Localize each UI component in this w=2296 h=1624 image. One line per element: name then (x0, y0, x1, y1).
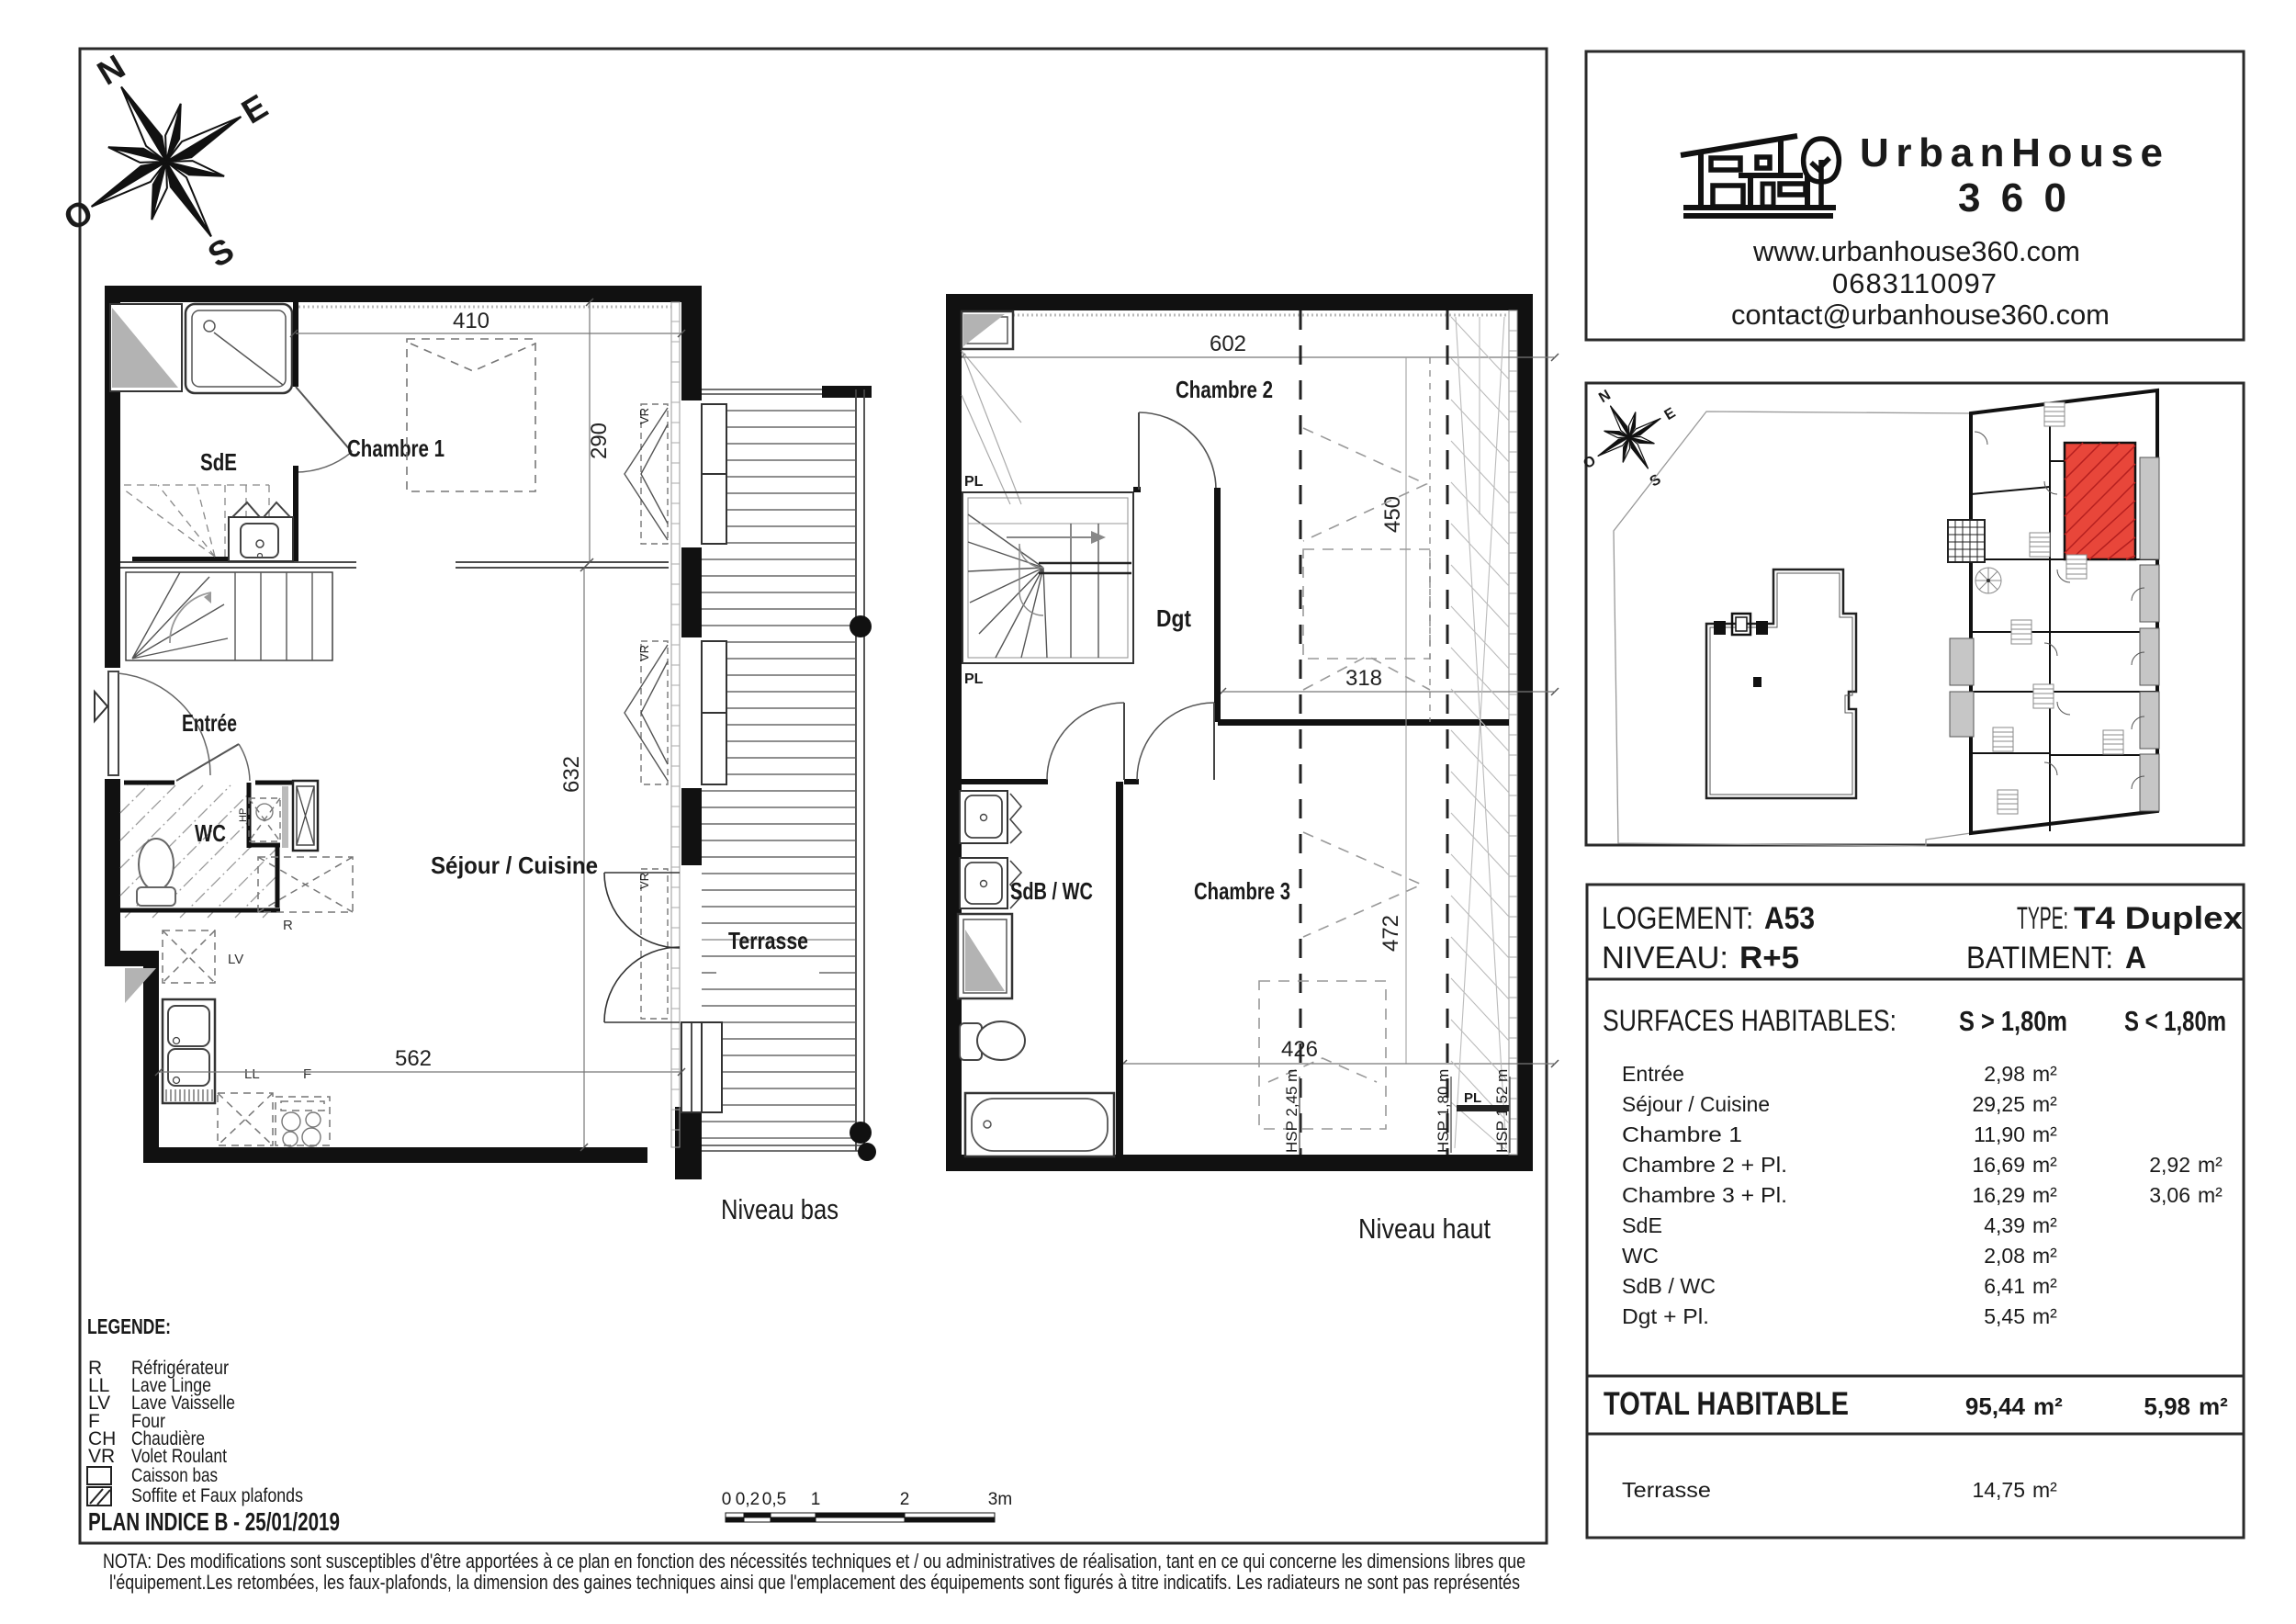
svg-text:m²: m² (2032, 1092, 2057, 1116)
svg-text:S < 1,80m: S < 1,80m (2124, 1005, 2226, 1037)
svg-text:2: 2 (900, 1490, 910, 1509)
svg-text:m²: m² (2032, 1244, 2057, 1268)
svg-text:HSP 1,80 m: HSP 1,80 m (1435, 1069, 1452, 1153)
svg-text:4,39: 4,39 (1984, 1213, 2025, 1237)
svg-text:PL: PL (1464, 1090, 1481, 1106)
svg-text:95,44: 95,44 (1965, 1393, 2026, 1420)
svg-text:m²: m² (2199, 1393, 2228, 1420)
svg-text:0,2: 0,2 (736, 1490, 760, 1509)
svg-text:602: 602 (1210, 332, 1246, 356)
svg-text:Séjour / Cuisine: Séjour / Cuisine (431, 851, 598, 879)
svg-text:TOTAL HABITABLE: TOTAL HABITABLE (1604, 1386, 1849, 1422)
svg-text:NOTA: Des modifications sont: NOTA: Des modifications sont susceptible… (103, 1550, 1525, 1573)
svg-text:T4 Duplex: T4 Duplex (2074, 901, 2243, 936)
svg-text:Terrasse: Terrasse (1622, 1478, 1711, 1502)
svg-text:VR: VR (637, 873, 651, 889)
svg-text:562: 562 (395, 1046, 432, 1071)
svg-text:410: 410 (453, 309, 490, 333)
svg-text:0683110097: 0683110097 (1832, 267, 1997, 299)
svg-text:m²: m² (2032, 1274, 2057, 1298)
svg-text:www.urbanhouse360.com: www.urbanhouse360.com (1752, 235, 2080, 267)
svg-text:m²: m² (2033, 1393, 2063, 1420)
svg-text:Chambre 3: Chambre 3 (1194, 877, 1290, 905)
svg-text:472: 472 (1379, 915, 1403, 952)
svg-text:3,06: 3,06 (2149, 1183, 2190, 1207)
svg-text:0: 0 (722, 1490, 732, 1509)
svg-text:Niveau haut: Niveau haut (1358, 1212, 1491, 1245)
svg-text:PL: PL (964, 474, 984, 490)
svg-text:A53: A53 (1764, 901, 1815, 936)
svg-text:HP: HP (238, 808, 249, 822)
svg-text:450: 450 (1380, 496, 1405, 533)
svg-text:Chambre 2: Chambre 2 (1176, 376, 1273, 403)
svg-text:PL: PL (964, 671, 984, 687)
svg-text:m²: m² (2032, 1213, 2057, 1237)
svg-text:360: 360 (1958, 175, 2066, 220)
svg-text:Terrasse: Terrasse (728, 927, 808, 954)
svg-text:WC: WC (1622, 1244, 1659, 1268)
svg-text:LL: LL (244, 1066, 260, 1082)
svg-text:TYPE:: TYPE: (2017, 901, 2068, 936)
svg-text:contact@urbanhouse360.com: contact@urbanhouse360.com (1731, 299, 2110, 331)
svg-text:Dgt + Pl.: Dgt + Pl. (1622, 1304, 1709, 1328)
svg-text:0,5: 0,5 (762, 1490, 786, 1509)
svg-text:m²: m² (2032, 1478, 2057, 1502)
svg-text:m²: m² (2198, 1183, 2223, 1207)
svg-text:290: 290 (587, 423, 612, 459)
svg-text:1: 1 (811, 1490, 821, 1509)
svg-text:R: R (283, 918, 293, 933)
svg-text:m²: m² (2032, 1122, 2057, 1146)
svg-text:5,98: 5,98 (2144, 1393, 2190, 1420)
svg-text:632: 632 (559, 756, 584, 793)
svg-text:Niveau bas: Niveau bas (721, 1193, 838, 1225)
svg-text:6,41: 6,41 (1984, 1274, 2025, 1298)
svg-text:m²: m² (2032, 1062, 2057, 1086)
svg-text:Dgt: Dgt (1156, 604, 1191, 632)
svg-text:S > 1,80m: S > 1,80m (1959, 1005, 2067, 1037)
svg-text:SURFACES HABITABLES:: SURFACES HABITABLES: (1603, 1004, 1896, 1037)
svg-text:UrbanHouse: UrbanHouse (1860, 130, 2163, 175)
svg-text:m²: m² (2032, 1183, 2057, 1207)
svg-text:Séjour / Cuisine: Séjour / Cuisine (1622, 1092, 1770, 1116)
svg-text:Entrée: Entrée (182, 709, 237, 737)
svg-text:SdE: SdE (1622, 1213, 1662, 1237)
svg-text:SdB / WC: SdB / WC (1622, 1274, 1716, 1298)
svg-text:VR: VR (88, 1446, 115, 1467)
svg-text:2,92: 2,92 (2149, 1153, 2190, 1177)
svg-text:LOGEMENT:: LOGEMENT: (1602, 901, 1753, 936)
svg-text:5,45: 5,45 (1984, 1304, 2025, 1328)
svg-text:l'équipement.Les retombées, l: l'équipement.Les retombées, les faux-pla… (109, 1571, 1520, 1594)
svg-text:Volet Roulant: Volet Roulant (131, 1446, 227, 1467)
svg-text:318: 318 (1345, 666, 1382, 691)
svg-text:Chambre 1: Chambre 1 (1622, 1122, 1742, 1146)
svg-text:16,69: 16,69 (1972, 1153, 2025, 1177)
svg-text:LV: LV (228, 952, 243, 967)
svg-text:Chambre 1: Chambre 1 (347, 434, 445, 462)
svg-text:Caisson bas: Caisson bas (131, 1465, 218, 1486)
svg-text:VR: VR (637, 645, 651, 661)
svg-text:16,29: 16,29 (1972, 1183, 2025, 1207)
svg-text:Chambre 2 + Pl.: Chambre 2 + Pl. (1622, 1153, 1787, 1177)
svg-text:Chambre 3 + Pl.: Chambre 3 + Pl. (1622, 1183, 1787, 1207)
svg-text:m²: m² (2032, 1153, 2057, 1177)
svg-text:m²: m² (2198, 1153, 2223, 1177)
svg-text:VR: VR (637, 408, 651, 424)
svg-text:WC: WC (195, 819, 226, 847)
svg-text:3m: 3m (988, 1490, 1012, 1509)
svg-text:R+5: R+5 (1739, 941, 1799, 976)
svg-text:14,75: 14,75 (1972, 1478, 2025, 1502)
svg-text:BATIMENT:: BATIMENT: (1966, 941, 2113, 976)
svg-text:29,25: 29,25 (1972, 1092, 2025, 1116)
svg-text:SdB / WC: SdB / WC (1010, 877, 1093, 905)
svg-text:HSP 2,45 m: HSP 2,45 m (1283, 1069, 1300, 1153)
svg-text:SdE: SdE (200, 448, 237, 476)
svg-text:11,90: 11,90 (1974, 1122, 2025, 1146)
svg-text:Entrée: Entrée (1622, 1062, 1684, 1086)
svg-text:Soffite et Faux plafonds: Soffite et Faux plafonds (131, 1485, 303, 1506)
svg-text:m²: m² (2032, 1304, 2057, 1328)
svg-text:2,98: 2,98 (1984, 1062, 2025, 1086)
svg-text:NIVEAU:: NIVEAU: (1602, 941, 1728, 976)
svg-text:F: F (303, 1066, 311, 1082)
svg-text:PLAN INDICE B - 25/01/2019: PLAN INDICE B - 25/01/2019 (88, 1507, 340, 1536)
svg-text:2,08: 2,08 (1984, 1244, 2025, 1268)
svg-text:LEGENDE:: LEGENDE: (87, 1314, 171, 1338)
svg-text:A: A (2125, 941, 2146, 976)
